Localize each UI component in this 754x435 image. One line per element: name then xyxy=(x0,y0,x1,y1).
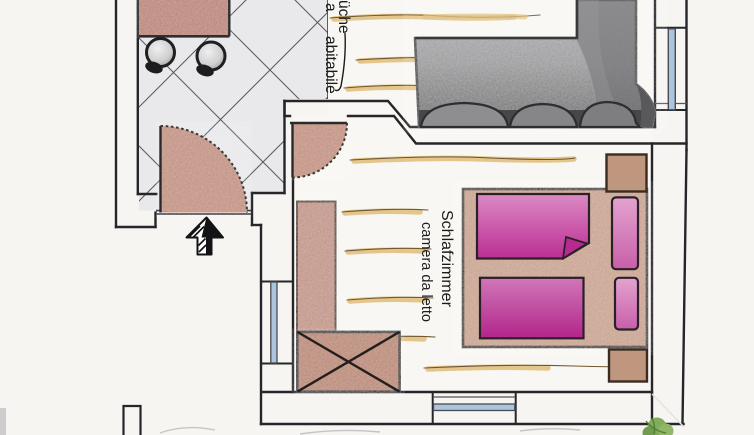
svg-text:abitabile: abitabile xyxy=(322,36,339,94)
svg-text:camera da letto: camera da letto xyxy=(418,222,434,322)
svg-text:Schlafzimmer: Schlafzimmer xyxy=(438,210,455,308)
svg-text:a: a xyxy=(322,3,339,12)
